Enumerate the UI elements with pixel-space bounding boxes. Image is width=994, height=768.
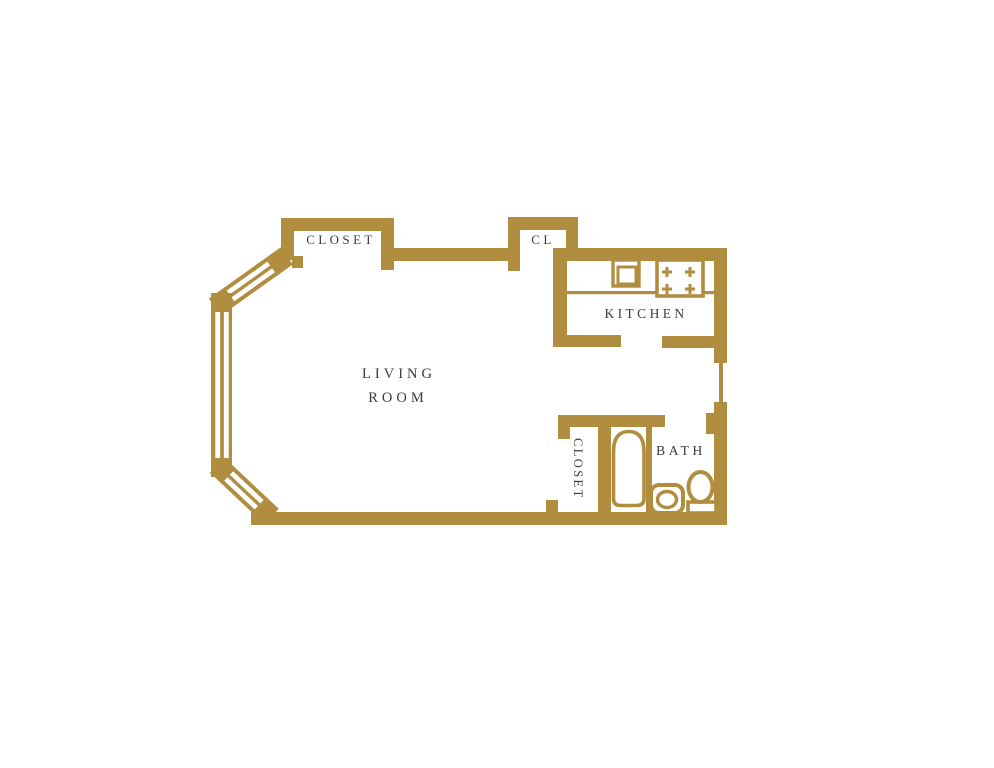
wall-top-main (381, 248, 509, 261)
wall-segment (281, 218, 394, 231)
wall-jamb (546, 500, 558, 514)
window-band (210, 457, 279, 524)
wall-jamb (292, 256, 303, 268)
bath-label: BATH (656, 443, 706, 458)
bath-walls (546, 415, 665, 515)
closet-top-label: CLOSET (306, 232, 376, 247)
window-middle-vertical (211, 293, 232, 477)
wall-bath-closet (598, 415, 611, 515)
bay-window (209, 247, 293, 524)
bath-closet-label: CLOSET (571, 438, 585, 500)
kitchen-label: KITCHEN (604, 306, 687, 321)
wall-kitchen-bottom-right (662, 336, 715, 348)
stove-outline (657, 260, 703, 296)
stove-icon (657, 260, 703, 296)
wall-kitchen-bottom-left (553, 335, 621, 347)
wall-kitchen-left (553, 248, 567, 347)
kitchen-sink-icon (613, 260, 639, 286)
living-room-label-line2: ROOM (368, 390, 428, 406)
wall-jamb (706, 413, 714, 434)
room-labels: CLOSET CL KITCHEN LIVING ROOM CLOSET BAT… (306, 232, 706, 500)
window-glazing-gap (215, 312, 220, 458)
wall-segment (381, 218, 394, 270)
wall-jamb (558, 427, 570, 439)
bathtub-icon (614, 432, 645, 506)
entry-door (719, 363, 723, 403)
floor-plan-drawing: CLOSET CL KITCHEN LIVING ROOM CLOSET BAT… (0, 0, 994, 768)
kitchen-fixtures (567, 260, 714, 296)
floor-plan: CLOSET CL KITCHEN LIVING ROOM CLOSET BAT… (0, 0, 994, 768)
window-band (211, 293, 232, 477)
wall-right-upper (714, 248, 727, 363)
living-room-label-line1: LIVING (362, 366, 436, 382)
bathroom-sink-icon (651, 485, 683, 513)
cl-label: CL (531, 232, 554, 247)
toilet-icon (688, 472, 716, 513)
toilet-bowl (689, 472, 713, 502)
window-lower-diagonal (210, 457, 279, 524)
window-glazing-gap (224, 312, 229, 458)
